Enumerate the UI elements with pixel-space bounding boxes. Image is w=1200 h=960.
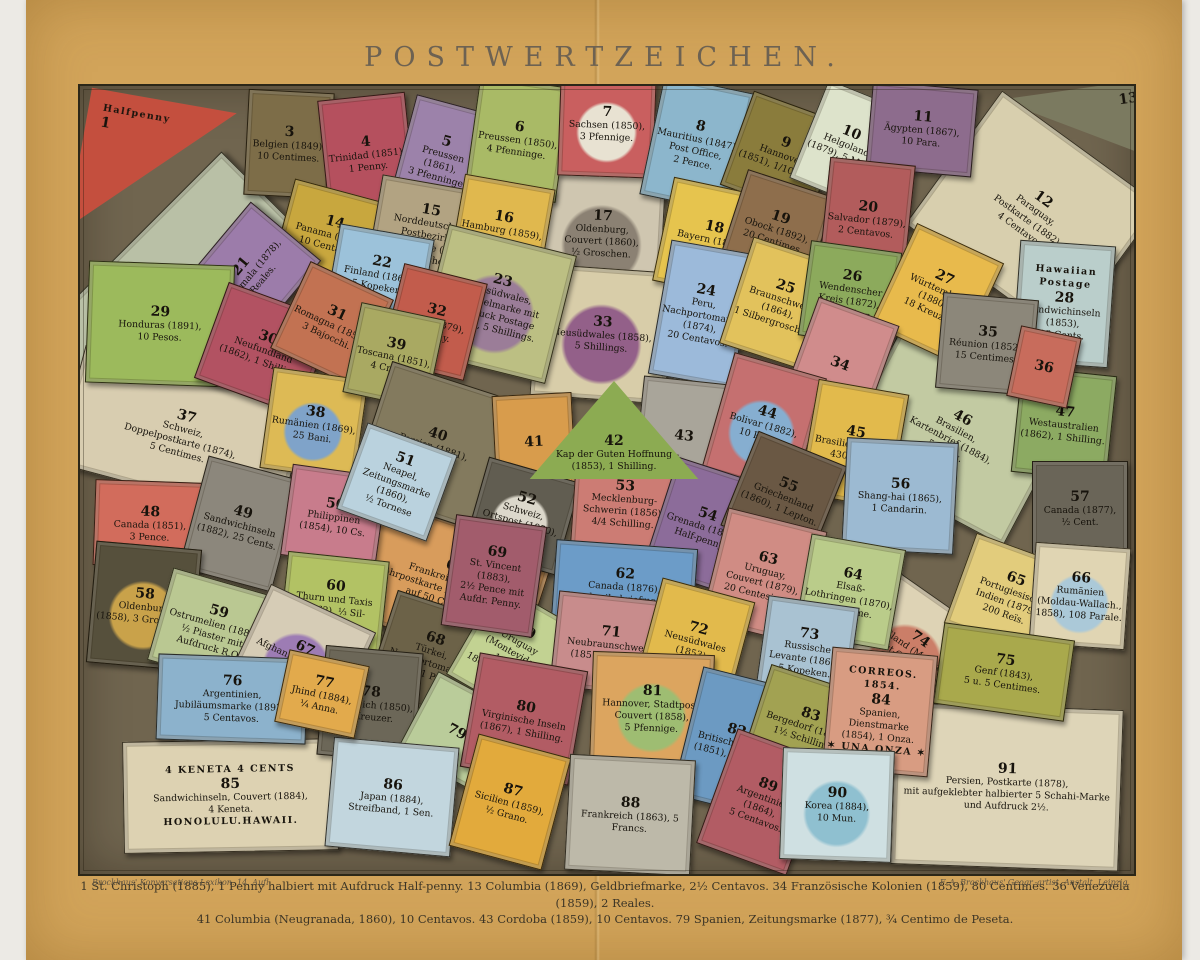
plate-title: POSTWERTZEICHEN. [78, 42, 1132, 73]
stamp-85-inscription-bottom: HONOLULU.HAWAII. [163, 815, 298, 830]
stamp-81-label-line: 5 Pfennige. [624, 722, 678, 736]
stamp-6-number: 6 [514, 118, 526, 135]
stamp-91-label-line: und Aufdruck 2½. [964, 800, 1049, 815]
stamp-71-number: 71 [601, 623, 622, 641]
stamp-plate: Halfpenny12Hannover,Postanweisung (1866)… [78, 84, 1136, 876]
stamp-84-number: 84 [871, 691, 892, 709]
stamp-3-label-line: 10 Centimes. [257, 150, 320, 165]
stamp-86: 86Japan (1884),Streifband, 1 Sen. [324, 737, 459, 858]
stamp-13-number: 13 [1117, 89, 1136, 108]
stamp-88-number: 88 [620, 794, 640, 811]
stamp-53-number: 53 [615, 477, 636, 494]
stamp-91-number: 91 [998, 761, 1018, 778]
stamp-7-label-line: 3 Pfennige. [580, 131, 634, 145]
stamp-42-number: 42 [604, 433, 623, 449]
stamp-1-inscription: Halfpenny [102, 102, 171, 126]
stamp-56: 56Shang-hai (1865),1 Candarin. [841, 437, 959, 555]
stamp-76-number: 76 [223, 673, 243, 690]
plate-footer: Brockhaus' Konversations-Lexikon. 14. Au… [78, 878, 1132, 928]
stamp-85: 4 KENETA 4 CENTS85Sandwichinseln, Couver… [122, 738, 339, 854]
scanned-plate-page: POSTWERTZEICHEN. Halfpenny12Hannover,Pos… [0, 0, 1200, 960]
stamp-90-label-line: Korea (1884), [804, 800, 869, 814]
stamp-28-number: 28 [1054, 290, 1075, 307]
stamp-88-label-line: Frankreich (1863), 5 Francs. [569, 808, 690, 838]
stamp-57-label-line: Canada (1877), [1044, 505, 1117, 517]
stamp-57-number: 57 [1070, 489, 1089, 505]
stamp-66-number: 66 [1071, 569, 1092, 586]
stamp-69: 69St. Vincent (1883),2½ Pence mitAufdr. … [441, 514, 548, 638]
stamp-7: 7Sachsen (1850),3 Pfennige. [557, 84, 657, 179]
stamp-3-number: 3 [284, 124, 295, 141]
stamp-20-number: 20 [858, 198, 879, 216]
stamp-85-number: 85 [220, 776, 240, 792]
stamp-48-number: 48 [140, 504, 160, 521]
stamp-33-label-line: 5 Shillings. [574, 340, 628, 356]
stamp-62-number: 62 [615, 565, 636, 582]
stamp-28-inscription: Hawaiian Postage [1020, 262, 1112, 293]
stamp-17-label-line: ½ Groschen. [571, 246, 631, 261]
stamp-90: 90Korea (1884),10 Mun. [779, 747, 895, 863]
stamp-60-number: 60 [325, 577, 346, 595]
publisher-credit-left: Brockhaus' Konversations-Lexikon. 14. Au… [92, 878, 271, 887]
stamp-33-number: 33 [593, 313, 614, 330]
stamp-29-label-line: 10 Pesos. [137, 331, 182, 345]
stamp-42-label-line: (1853), 1 Shilling. [572, 461, 657, 473]
stamp-90-label-line: 10 Mun. [817, 812, 857, 825]
stamp-58-number: 58 [135, 585, 156, 603]
stamp-86-number: 86 [383, 776, 404, 794]
stamp-7-number: 7 [602, 104, 612, 120]
caption-line-2: 41 Columbia (Neugranada, 1860), 10 Centa… [78, 911, 1132, 928]
stamp-56-number: 56 [890, 475, 910, 492]
stamp-42-label-line: Kap der Guten Hoffnung [556, 449, 672, 461]
stamp-11-number: 11 [913, 108, 934, 126]
stamp-8-number: 8 [694, 117, 707, 135]
stamp-35-number: 35 [978, 323, 999, 341]
publisher-credit-right: F. A. Brockhaus' Geogr.-artist. Anstalt,… [940, 878, 1130, 887]
stamp-29-number: 29 [150, 304, 170, 321]
stamp-36-number: 36 [1033, 357, 1055, 377]
stamp-88: 88Frankreich (1863), 5 Francs. [564, 754, 696, 876]
stamp-66: 66Rumänien(Moldau-Wallach.,1858), 108 Pa… [1029, 542, 1132, 650]
stamp-85-inscription: 4 KENETA 4 CENTS [164, 762, 294, 777]
stamp-56-label-line: 1 Candarin. [871, 503, 927, 518]
stamp-48-label-line: 3 Pence. [129, 531, 169, 544]
stamp-81-number: 81 [643, 683, 663, 700]
stamp-90-number: 90 [827, 785, 847, 802]
stamp-57-label-line: ½ Cent. [1061, 517, 1098, 529]
stamp-34-number: 34 [828, 353, 852, 375]
stamp-41-number: 41 [524, 433, 544, 450]
stamp-85-label-line: 4 Keneta. [208, 804, 253, 817]
stamp-76-label-line: 5 Centavos. [203, 712, 259, 726]
stamp-1-number: 1 [99, 114, 111, 132]
stamp-11-label-line: 10 Para. [901, 135, 941, 150]
stamp-43-number: 43 [673, 427, 694, 445]
stamp-17-number: 17 [593, 207, 613, 224]
stamp-4-number: 4 [360, 133, 371, 150]
